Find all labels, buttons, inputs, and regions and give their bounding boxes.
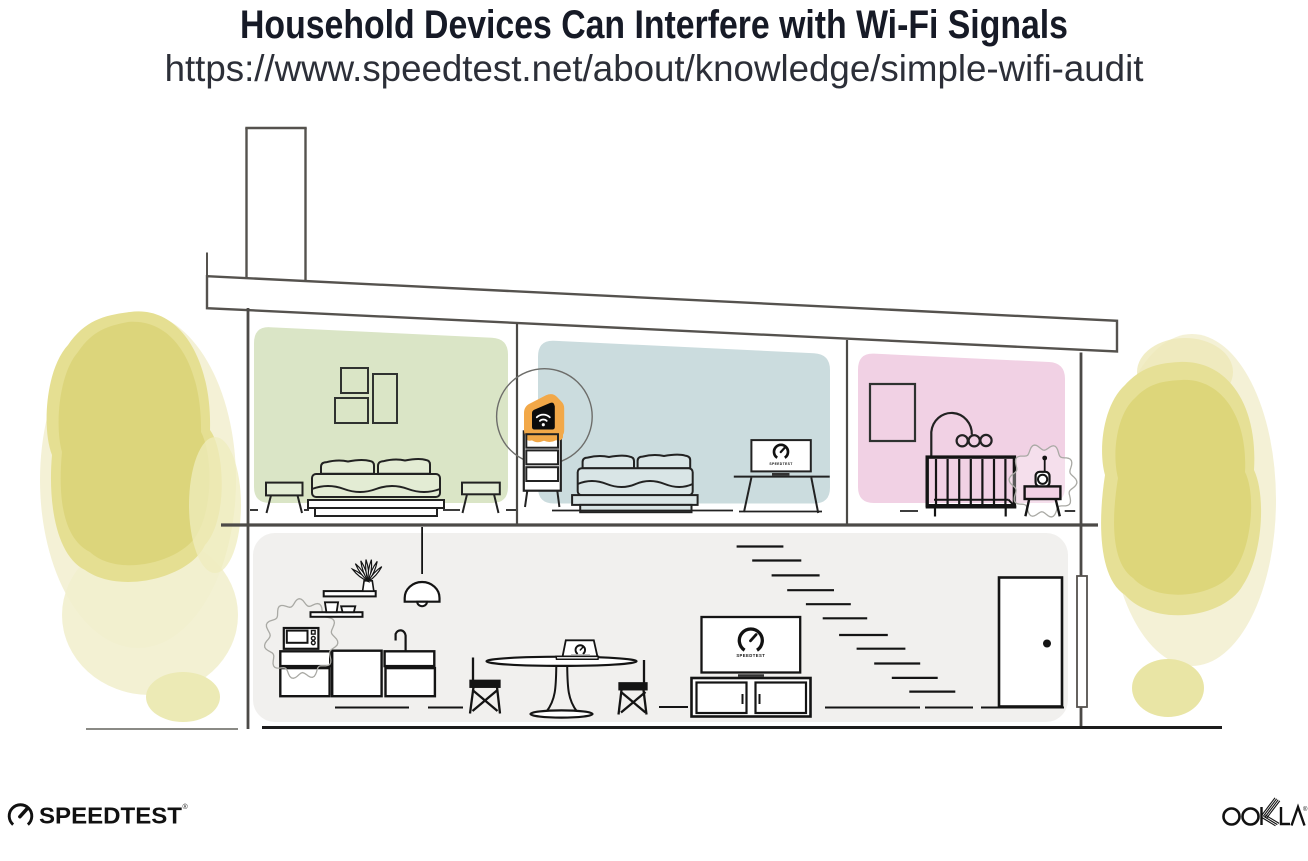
svg-text:®: ® bbox=[1303, 806, 1308, 813]
svg-text:®: ® bbox=[183, 803, 189, 811]
svg-text:SPEEDTEST: SPEEDTEST bbox=[39, 803, 183, 829]
svg-text:SPEEDTEST: SPEEDTEST bbox=[769, 462, 793, 466]
svg-text:SPEEDTEST: SPEEDTEST bbox=[736, 653, 765, 658]
